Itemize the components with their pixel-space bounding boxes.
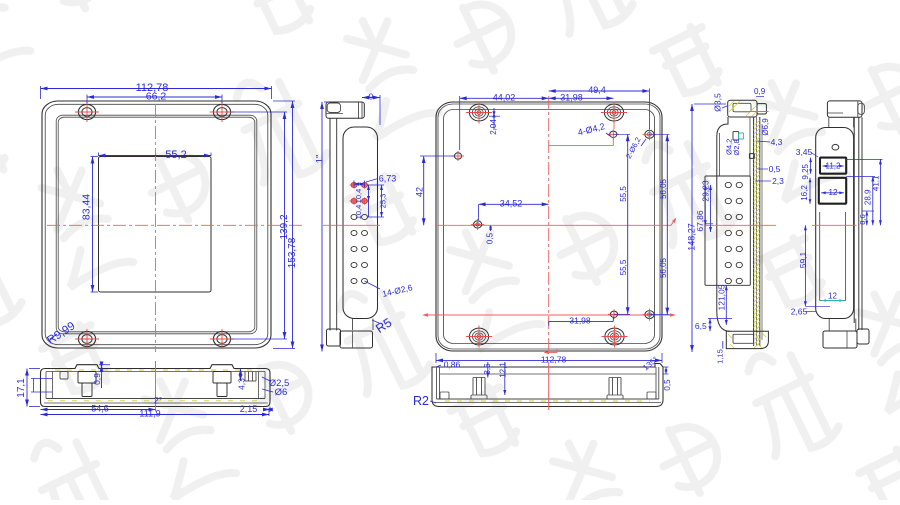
svg-text:10,4: 10,4 xyxy=(354,189,363,204)
svg-text:25,3: 25,3 xyxy=(379,194,388,209)
svg-text:59,1: 59,1 xyxy=(798,251,808,268)
svg-text:0,5: 0,5 xyxy=(486,232,495,244)
svg-text:Ø3,5: Ø3,5 xyxy=(713,93,723,112)
svg-text:29,23: 29,23 xyxy=(701,180,711,202)
svg-text:153,78: 153,78 xyxy=(287,237,298,268)
svg-text:0,5: 0,5 xyxy=(769,164,781,174)
svg-text:4,3: 4,3 xyxy=(771,137,783,147)
svg-text:54,6: 54,6 xyxy=(91,404,109,414)
svg-text:31,98: 31,98 xyxy=(569,316,591,326)
svg-text:49,4: 49,4 xyxy=(588,85,606,95)
svg-text:3,45: 3,45 xyxy=(796,147,813,157)
svg-text:Ø2,8: Ø2,8 xyxy=(732,139,741,155)
svg-text:55,5: 55,5 xyxy=(619,259,628,275)
svg-text:12,1: 12,1 xyxy=(499,362,508,378)
svg-text:0,86: 0,86 xyxy=(444,359,461,369)
svg-text:12: 12 xyxy=(829,188,838,197)
svg-text:1": 1" xyxy=(315,155,326,164)
svg-text:66,2: 66,2 xyxy=(146,91,167,103)
svg-text:31,98: 31,98 xyxy=(560,93,583,103)
svg-text:12: 12 xyxy=(828,291,837,300)
svg-text:2,04: 2,04 xyxy=(489,119,498,135)
svg-text:Ø6: Ø6 xyxy=(275,387,288,398)
svg-text:44,02: 44,02 xyxy=(493,93,516,103)
svg-text:112,78: 112,78 xyxy=(541,354,567,364)
svg-text:2,65: 2,65 xyxy=(791,306,808,316)
svg-text:56,05: 56,05 xyxy=(659,178,668,199)
svg-text:6,73: 6,73 xyxy=(379,174,397,184)
svg-text:2°: 2° xyxy=(154,396,163,406)
svg-text:42: 42 xyxy=(414,187,424,197)
svg-text:2,15: 2,15 xyxy=(240,404,258,414)
svg-text:3,6: 3,6 xyxy=(483,363,492,375)
svg-text:R2: R2 xyxy=(413,394,429,408)
svg-text:111,9: 111,9 xyxy=(139,409,160,419)
svg-text:11,2: 11,2 xyxy=(826,161,842,170)
svg-text:67,86: 67,86 xyxy=(695,210,705,232)
svg-text:17,1: 17,1 xyxy=(16,378,27,398)
svg-text:4,3: 4,3 xyxy=(237,378,247,390)
svg-text:56,05: 56,05 xyxy=(659,257,668,278)
svg-text:0,9: 0,9 xyxy=(92,373,102,385)
svg-text:83,44: 83,44 xyxy=(81,194,93,220)
svg-text:16,2: 16,2 xyxy=(800,185,809,201)
svg-text:6,5: 6,5 xyxy=(695,321,707,331)
svg-text:1,15: 1,15 xyxy=(716,349,725,364)
svg-text:9: 9 xyxy=(369,92,374,102)
svg-text:34,52: 34,52 xyxy=(500,199,523,209)
svg-text:10,4: 10,4 xyxy=(354,205,363,220)
svg-text:0,9: 0,9 xyxy=(754,87,766,96)
svg-text:8,6: 8,6 xyxy=(858,214,867,224)
svg-text:55,2: 55,2 xyxy=(165,149,186,161)
svg-text:139,2: 139,2 xyxy=(279,214,290,239)
svg-text:121,05: 121,05 xyxy=(717,284,727,310)
svg-text:41,1: 41,1 xyxy=(871,175,880,191)
svg-text:55,5: 55,5 xyxy=(619,186,628,202)
svg-text:2,3: 2,3 xyxy=(772,176,784,186)
svg-text:9,25: 9,25 xyxy=(801,163,810,179)
svg-text:Ø6,9: Ø6,9 xyxy=(761,118,770,136)
svg-text:0,5: 0,5 xyxy=(663,379,672,391)
